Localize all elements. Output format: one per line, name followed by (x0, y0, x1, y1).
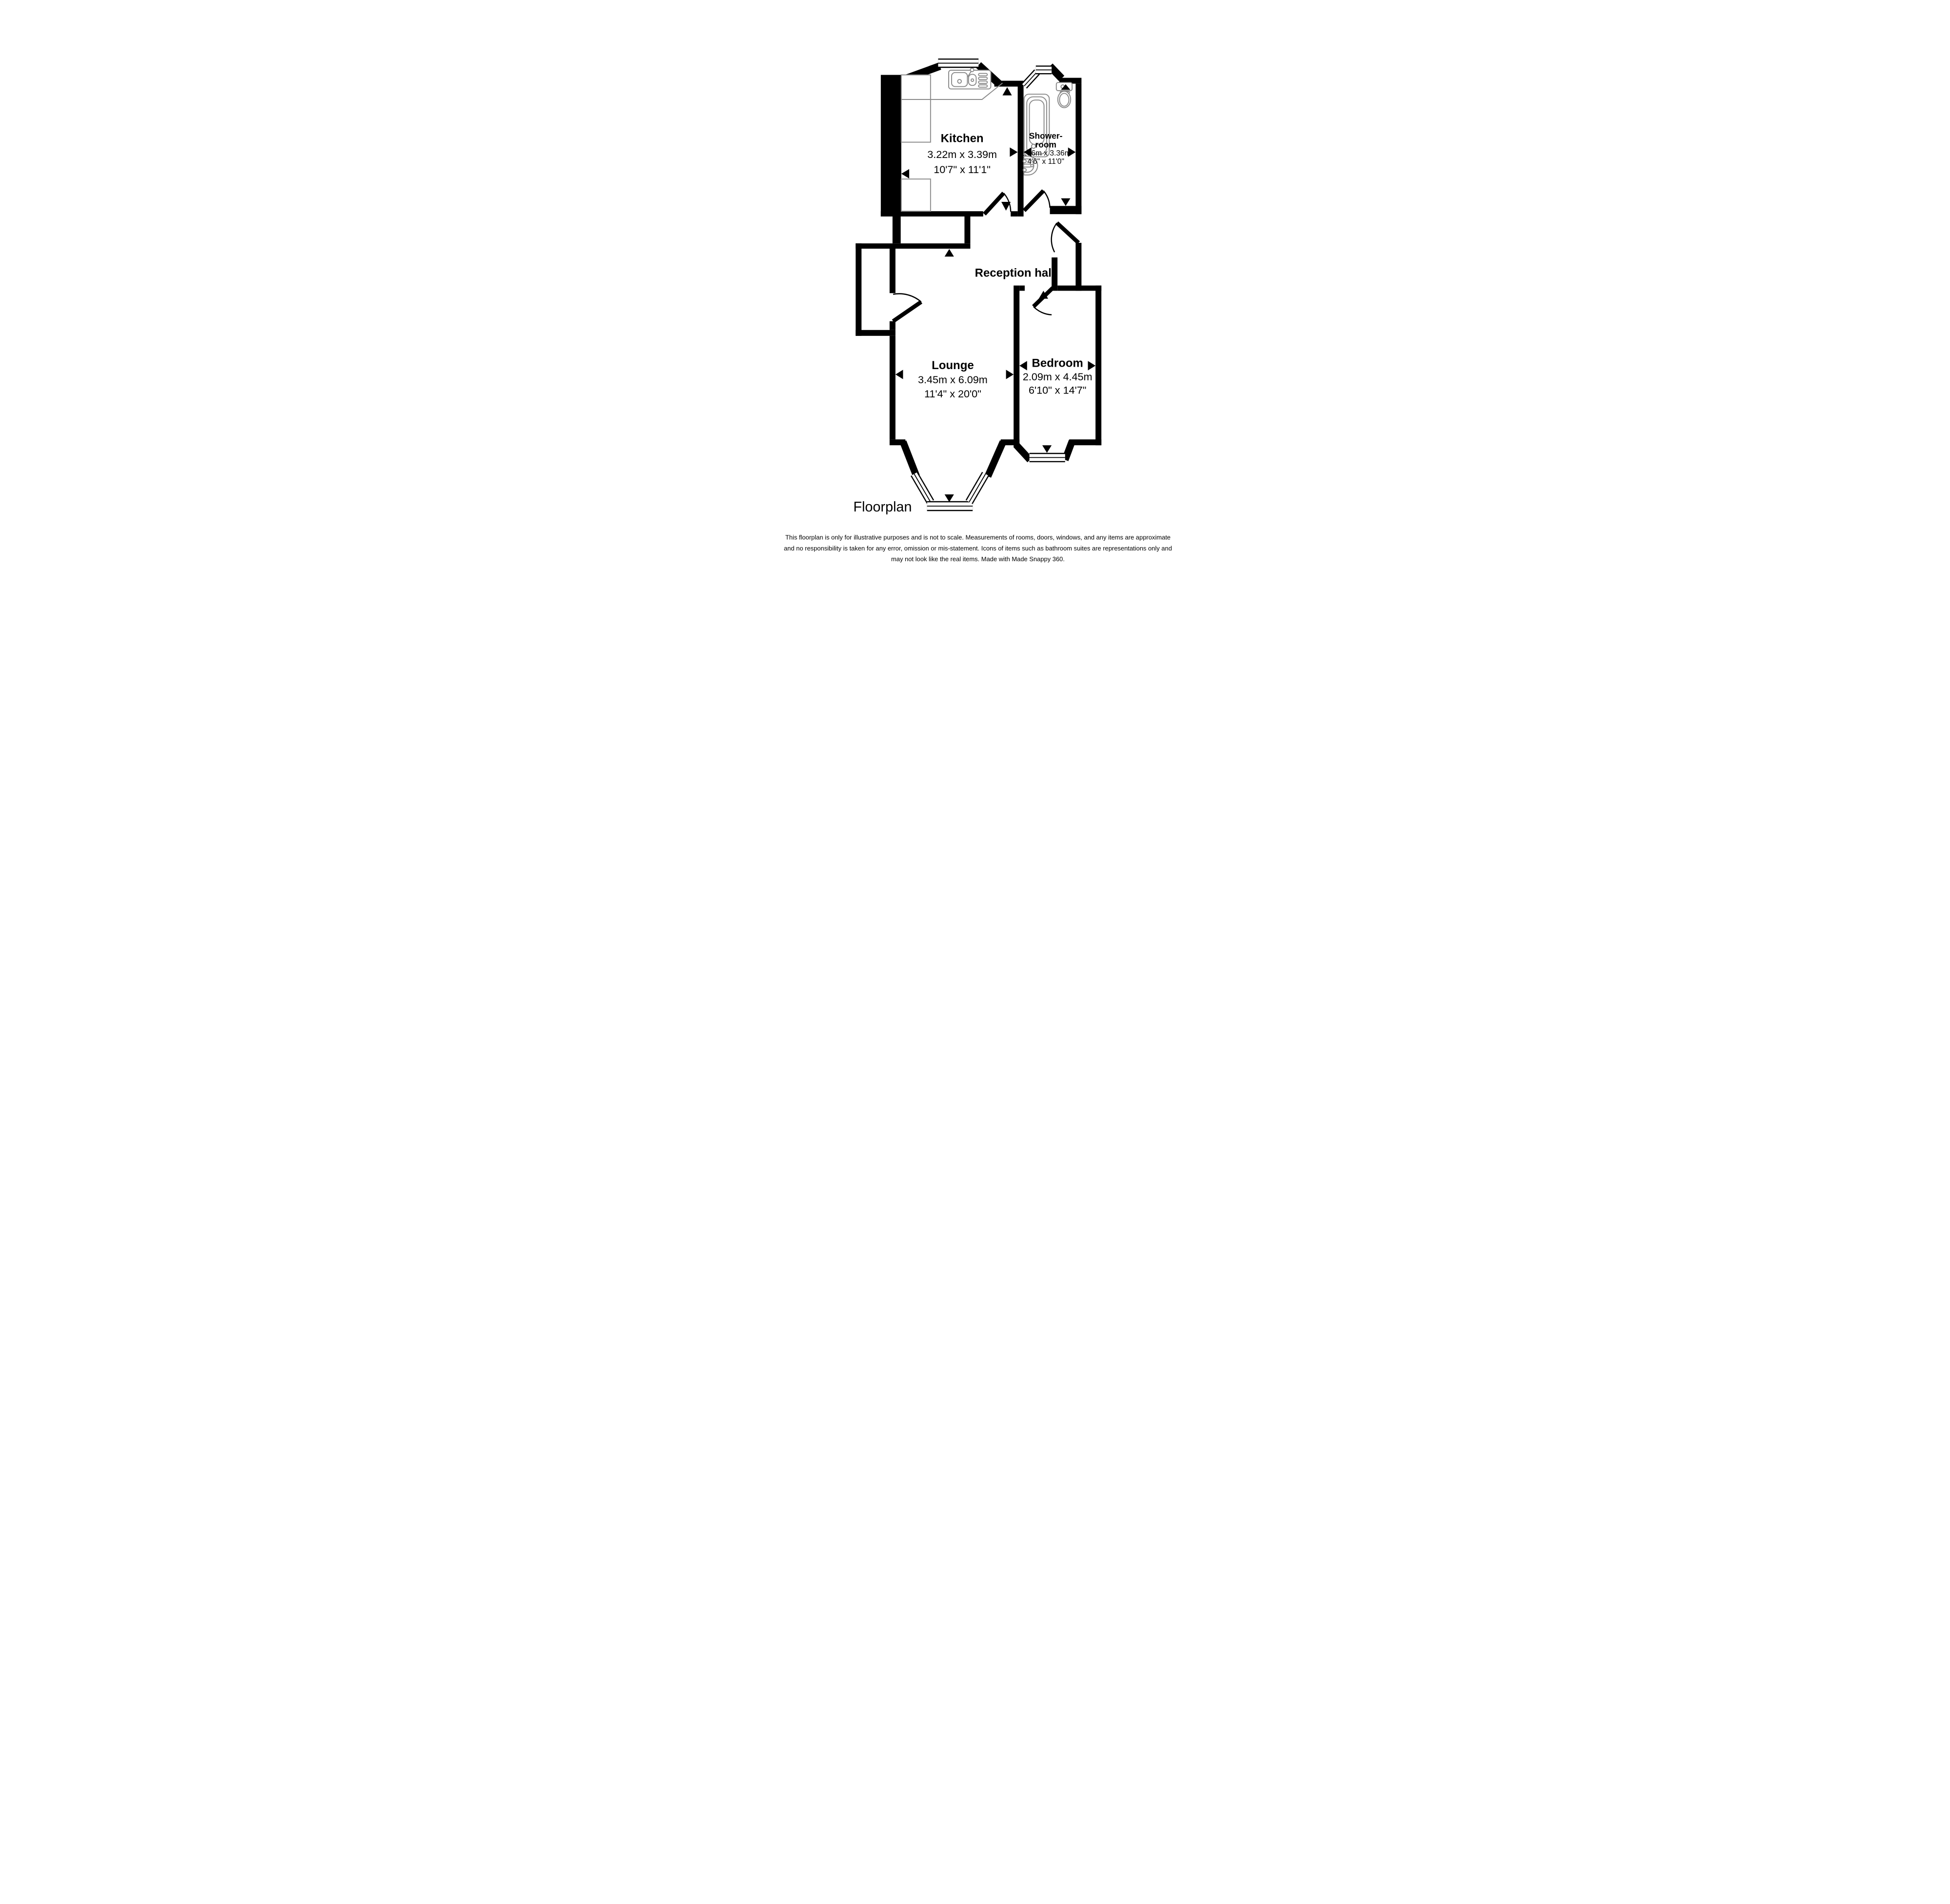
disclaimer-line-3: may not look like the real items. Made w… (891, 555, 1065, 563)
disclaimer: This floorplan is only for illustrative … (784, 533, 1172, 562)
lounge-label: Lounge 3.45m x 6.09m 11'4" x 20'0" (918, 359, 988, 400)
bedroom-bay-left-solid (1016, 445, 1030, 460)
bedroom-right-wall (1095, 286, 1101, 446)
reception-hall-name: Reception hall (975, 267, 1055, 280)
shower-bottom-wall (1050, 206, 1082, 214)
shower-name-line2: room (1035, 139, 1056, 149)
bedroom-label: Bedroom 2.09m x 4.45m 6'10" x 14'7" (1023, 356, 1092, 396)
shower-door (1024, 191, 1050, 211)
hall-right-wall (1075, 243, 1081, 291)
alcove-right-wall-upper (890, 249, 896, 293)
lounge-left-wall (890, 336, 896, 439)
bedroom-dims-metric: 2.09m x 4.45m (1023, 371, 1092, 383)
lounge-name: Lounge (932, 359, 974, 372)
alcove-bottom-wall (856, 330, 896, 336)
disclaimer-line-1: This floorplan is only for illustrative … (785, 533, 1170, 541)
lounge-bay-right-solid (988, 442, 1003, 476)
kitchen-counter-upper (901, 75, 931, 142)
shower-right-wall (1075, 84, 1081, 215)
kitchen-arrow-left-icon (901, 169, 909, 178)
lounge-arrow-left-icon (896, 370, 903, 379)
shower-arrow-down-icon (1061, 198, 1070, 206)
lounge-bay-left-solid (903, 442, 916, 476)
lounge-arrow-right-icon (1006, 370, 1014, 379)
shower-dims-imperial: 4'6" x 11'0" (1027, 157, 1064, 166)
bedroom-arrow-left-icon (1019, 361, 1027, 370)
lounge-dims-imperial: 11'4" x 20'0" (924, 388, 981, 400)
lounge-bedroom-divider-wall (1014, 286, 1019, 448)
floorplan-page: Kitchen 3.22m x 3.39m 10'7" x 11'1" Show… (682, 0, 1267, 571)
lounge-alcove-door (893, 294, 921, 321)
bedroom-dims-imperial: 6'10" x 14'7" (1029, 384, 1086, 396)
bedroom-top-wall-right (1057, 286, 1101, 291)
lounge-arrow-up-icon (945, 249, 954, 257)
kitchen-arrow-up-icon (1002, 87, 1012, 96)
page-title: Floorplan (853, 499, 912, 515)
measure-arrows-layer (896, 84, 1095, 502)
bedroom-top-wall-left (1019, 286, 1025, 291)
lounge-arrow-down-icon (945, 494, 954, 502)
kitchen-left-wall (881, 75, 901, 216)
shower-dims-metric: 1.36m x 3.36m (1021, 149, 1071, 157)
bedroom-arrow-right-icon (1088, 361, 1096, 370)
reception-hall-label: Reception hall (975, 267, 1055, 280)
kitchen-arrow-down-icon (1001, 202, 1011, 211)
lounge-dims-metric: 3.45m x 6.09m (918, 373, 988, 386)
room-labels-layer: Kitchen 3.22m x 3.39m 10'7" x 11'1" Show… (918, 131, 1092, 399)
kitchen-dims-metric: 3.22m x 3.39m (927, 148, 997, 160)
kitchen-name: Kitchen (941, 132, 984, 145)
kitchen-bottom-wall-right (1011, 211, 1017, 216)
front-door (1052, 223, 1079, 252)
kitchen-sink-icon (949, 68, 991, 89)
kitchen-bottom-wall-left (881, 211, 983, 216)
kitchen-dims-imperial: 10'7" x 11'1" (934, 163, 991, 176)
disclaimer-line-2: and no responsibility is taken for any e… (784, 545, 1172, 552)
kitchen-lounge-stub-wall (893, 216, 901, 243)
alcove-left-wall (856, 243, 861, 336)
kitchen-label: Kitchen 3.22m x 3.39m 10'7" x 11'1" (927, 132, 997, 176)
hall-left-wall (964, 216, 970, 243)
lounge-bay-window-right (969, 474, 986, 502)
bedroom-bay-right-solid (1065, 441, 1072, 460)
bedroom-name: Bedroom (1032, 356, 1083, 370)
bedroom-arrow-down-icon (1042, 445, 1052, 453)
lounge-top-wall (856, 243, 970, 249)
kitchen-counter-lower (901, 179, 931, 211)
kitchen-arrow-right-icon (1010, 147, 1017, 157)
shower-corner-window (1024, 72, 1037, 86)
lounge-bay-window-left (914, 474, 931, 502)
floorplan-canvas: Kitchen 3.22m x 3.39m 10'7" x 11'1" Show… (682, 0, 1267, 571)
